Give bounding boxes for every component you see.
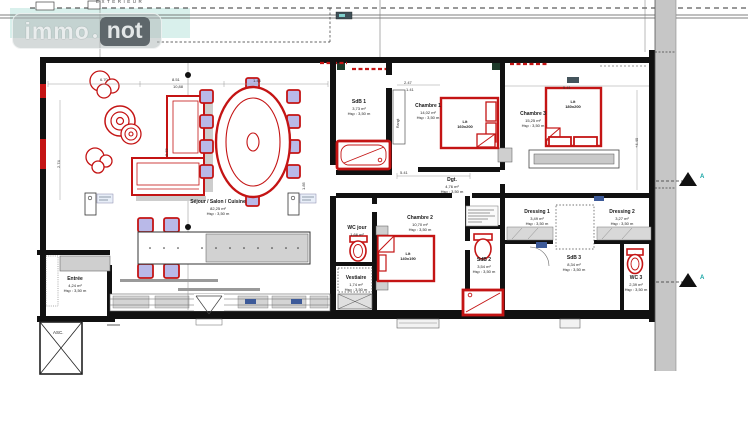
wall-red-dashes [320,63,548,69]
plant-icon [90,71,119,98]
entree-closet [60,256,110,271]
closet-label: Rangt [396,119,400,128]
chair-icon [200,115,213,128]
window-sill [560,319,580,328]
dim-chip [594,196,604,201]
wall-red-segment [40,84,46,98]
watermark-dot-icon [93,34,97,38]
elevator-label: ASC. [53,330,64,335]
closet-rangement [393,90,405,144]
right-structure [655,0,676,371]
bathtub-icon [337,141,390,169]
dim-label: 2.47 [404,80,412,85]
door-step [196,319,222,325]
dim-chip [291,299,302,304]
dim-label: 2.72 [164,148,169,156]
round-rug-icon [105,106,141,144]
section-marker-letter: A [700,275,704,281]
washbasin-icon-sdb2 [474,234,492,259]
watermark-brand-not: not [100,17,150,46]
chair-icon [200,90,213,103]
dim-label: 2.74 [56,160,61,168]
window-sill [397,319,439,328]
dim-label: 5.41 [400,170,408,175]
dim-label: 6.70 [100,77,108,82]
wall-post [492,63,500,70]
nightstand [498,148,512,162]
pillow [486,102,496,121]
dim-chip [567,77,579,83]
stool-icon [164,218,179,232]
dim-chip [536,242,547,248]
pillow [379,255,386,271]
section-triangle-icon [679,273,697,287]
bedroom2-furniture [338,206,503,315]
plant-icon [86,148,112,173]
coat-closet [46,256,58,306]
kitchen-island-icon [120,218,310,291]
chair-icon [200,140,213,153]
toilet-icon-wc3 [627,249,643,274]
column-icon [288,193,316,215]
entree-fittings [46,256,110,306]
section-triangle-icon [679,172,697,186]
watermark-brand-immo: immo [24,18,89,45]
counter-edge [178,288,260,291]
nightstand [376,226,388,235]
note-chip [300,194,316,203]
dim-label: 5.41 [563,85,571,90]
stool-icon [138,264,153,278]
exterior-label: EXTERIEUR [96,0,144,4]
dim-label: 10,88 [173,84,183,89]
floor-plan-drawing [0,0,750,422]
chair-icon [287,90,300,103]
column-icon [85,193,113,215]
floor-plan-screenshot: EXTERIEUR Séjour / Salon / Cuisine 82,25… [0,0,750,422]
watermark-logo: immo not [12,13,162,49]
bed-icon-chambre3 [546,88,601,146]
dim-label: 1.44 [253,78,261,83]
dim-chip [245,299,256,304]
counter-edge [120,279,218,282]
dim-label: 8.51 [172,77,180,82]
annotation-box [466,206,498,226]
dim-label: 1.85 [301,182,306,190]
chair-icon [200,165,213,178]
dim-label: 1.41 [406,87,414,92]
wall-red-segment [40,139,46,169]
section-dot [185,72,191,78]
door-arc [530,247,549,266]
bed-icon-chambre2 [376,226,434,290]
note-chip [97,194,113,203]
bedroom3-furniture [505,77,649,168]
stool-icon [164,264,179,278]
dim-label: +4.40 [634,138,639,148]
living-furniture [85,63,316,310]
dressing-sdb3-wc3 [507,196,651,274]
wall-top [40,57,655,63]
bedroom1-furniture [337,90,512,169]
shower-icon-sdb2 [463,290,503,315]
section-marker-letter: A [700,174,704,180]
toilet-icon-wc-jour [350,236,367,261]
nightstand [376,281,388,290]
wall-bottom [110,310,655,319]
survey-box [36,2,54,10]
wall-entree-bottom [37,316,115,322]
section-dot [185,224,191,230]
wardrobe-dotted [338,268,372,292]
chair-icon [287,165,300,178]
passage-dotted [556,205,594,249]
stool-icon [138,218,153,232]
right-gray-band [655,0,676,371]
dining-table-icon [200,78,300,206]
